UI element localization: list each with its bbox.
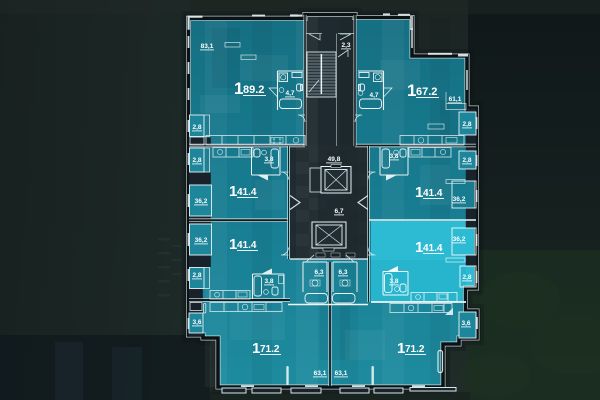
svg-text:49,8: 49,8 [328,156,341,163]
svg-text:36,2: 36,2 [195,237,208,244]
svg-text:41.4: 41.4 [423,243,443,254]
svg-text:71.2: 71.2 [260,344,280,355]
svg-text:6,7: 6,7 [334,208,343,215]
svg-text:2,8: 2,8 [462,157,471,164]
svg-text:6,3: 6,3 [314,269,323,276]
svg-text:2,8: 2,8 [462,274,471,281]
svg-text:4,7: 4,7 [369,92,378,99]
svg-text:3,6: 3,6 [461,320,470,327]
svg-text:36,2: 36,2 [453,196,466,203]
svg-text:67.2: 67.2 [416,86,437,98]
svg-text:6,3: 6,3 [338,269,347,276]
svg-text:63,1: 63,1 [314,370,327,377]
svg-text:63,1: 63,1 [335,370,348,377]
svg-text:41.4: 41.4 [237,187,257,198]
svg-text:71.2: 71.2 [405,344,425,355]
svg-text:89.2: 89.2 [243,84,264,96]
svg-text:3,8: 3,8 [389,278,398,285]
svg-text:3,8: 3,8 [264,156,273,163]
svg-text:83,1: 83,1 [201,43,214,50]
svg-text:41.4: 41.4 [237,240,257,251]
svg-text:61,1: 61,1 [449,96,462,103]
svg-text:2,8: 2,8 [192,157,201,164]
svg-text:3,6: 3,6 [192,319,201,326]
svg-text:2,8: 2,8 [462,121,471,128]
svg-text:36,2: 36,2 [453,236,466,243]
svg-text:2,3: 2,3 [341,42,350,49]
svg-text:4,7: 4,7 [285,90,294,97]
svg-text:3,8: 3,8 [389,153,398,160]
svg-text:36,2: 36,2 [195,198,208,205]
svg-text:3,8: 3,8 [264,278,273,285]
svg-text:2,8: 2,8 [192,272,201,279]
svg-text:41.4: 41.4 [423,188,443,199]
svg-text:2,8: 2,8 [192,124,201,131]
